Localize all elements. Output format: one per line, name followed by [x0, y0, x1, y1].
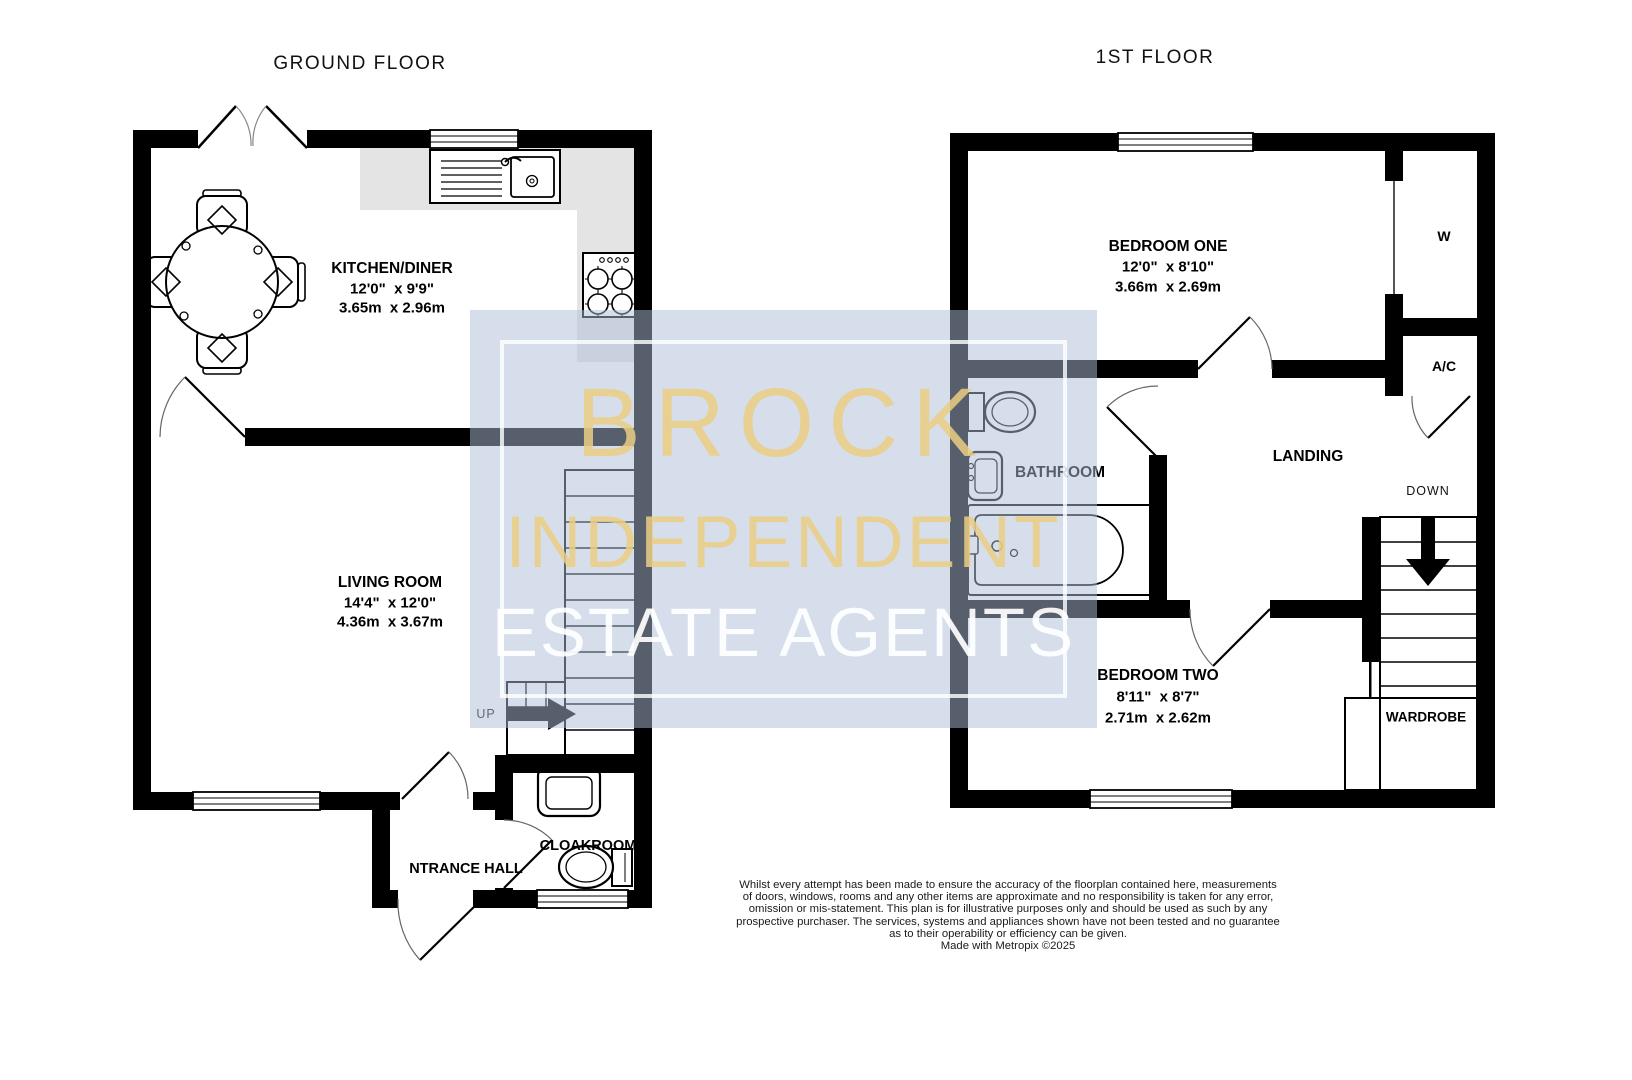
window-kitchen — [430, 130, 518, 148]
bedroom-two-imperial: 8'11" x 8'7" — [1116, 689, 1199, 706]
wardrobe-w-label: W — [1437, 228, 1450, 244]
bathroom-door — [1107, 386, 1158, 458]
bedroom-one-label: BEDROOM ONE — [1109, 238, 1228, 256]
disclaimer-line: of doors, windows, rooms and any other i… — [700, 891, 1316, 903]
french-door — [198, 106, 307, 148]
bathroom-label: BATHROOM — [1015, 464, 1105, 482]
kitchen-sink — [430, 150, 560, 203]
sliding-door — [1393, 181, 1395, 294]
living-room-imperial: 14'4" x 12'0" — [344, 595, 436, 612]
cloakroom-label: CLOAKROOM — [540, 838, 637, 854]
window-living — [193, 792, 320, 810]
kitchen-door — [160, 377, 245, 437]
disclaimer: Whilst every attempt has been made to en… — [700, 879, 1316, 952]
floorplan-page: GROUND FLOOR 1ST FLOOR KITCHEN/DINER 12'… — [0, 0, 1632, 1080]
metropix-credit: Made with Metropix ©2025 — [700, 940, 1316, 952]
kitchen-diner-imperial: 12'0" x 9'9" — [350, 281, 434, 298]
first-floor-title: 1ST FLOOR — [1096, 47, 1215, 69]
bedroom-two-metric: 2.71m x 2.62m — [1105, 710, 1211, 727]
ground-floor-title: GROUND FLOOR — [273, 53, 446, 75]
living-room-label: LIVING ROOM — [338, 574, 442, 592]
kitchen-diner-metric: 3.65m x 2.96m — [339, 300, 445, 317]
bedroom-one-metric: 3.66m x 2.69m — [1115, 279, 1221, 296]
stairs-down-label: DOWN — [1406, 484, 1450, 498]
stairs-up-label: UP — [476, 707, 495, 721]
entrance-hall-label: NTRANCE HALL — [409, 861, 523, 877]
disclaimer-line: as to their operability or efficiency ca… — [700, 928, 1316, 940]
disclaimer-line: Whilst every attempt has been made to en… — [700, 879, 1316, 891]
bathtub — [968, 505, 1162, 595]
hob — [583, 253, 637, 317]
bathroom-toilet — [968, 392, 1035, 432]
bedroom-one-imperial: 12'0" x 8'10" — [1122, 259, 1214, 276]
hall-door — [402, 752, 468, 799]
ground-floor-plan — [133, 106, 652, 960]
airing-cupboard-door — [1412, 396, 1470, 438]
stair-banister — [1369, 662, 1372, 698]
window-cloakroom — [537, 890, 628, 908]
bedroom-one-door — [1198, 317, 1272, 369]
bedroom-two-label: BEDROOM TWO — [1097, 667, 1218, 685]
dining-table — [139, 190, 305, 374]
windows-first — [1090, 133, 1253, 808]
wardrobe-label: WARDROBE — [1386, 710, 1466, 725]
front-door — [398, 899, 482, 960]
bathroom-sink — [968, 452, 1002, 500]
disclaimer-line: prospective purchaser. The services, sys… — [700, 916, 1316, 928]
living-room-metric: 4.36m x 3.67m — [337, 614, 443, 631]
window-bedroom-one — [1118, 133, 1253, 151]
bedroom-two-door — [1190, 609, 1270, 666]
kitchen-diner-label: KITCHEN/DINER — [331, 260, 452, 278]
landing-label: LANDING — [1273, 448, 1344, 466]
disclaimer-line: omission or mis-statement. This plan is … — [700, 903, 1316, 915]
window-bedroom-two — [1090, 790, 1232, 808]
cloakroom-door — [504, 820, 552, 888]
airing-cupboard-label: A/C — [1432, 358, 1456, 374]
